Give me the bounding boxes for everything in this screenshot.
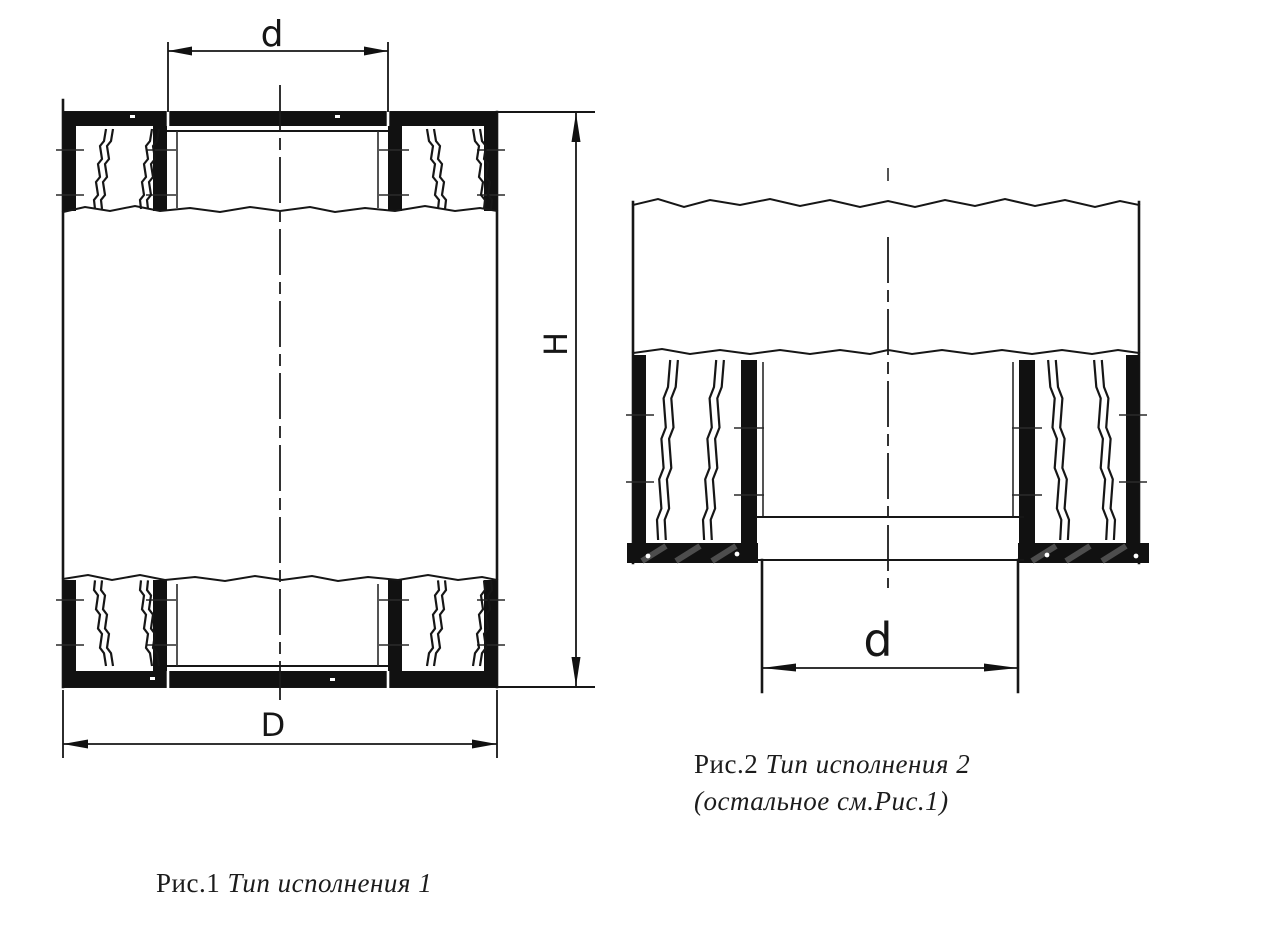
fig2-dimension-d: d xyxy=(762,613,1018,672)
figure2-caption-title: Тип исполнения 2 xyxy=(765,749,970,779)
figure1-caption: Рис.1 Тип исполнения 1 xyxy=(156,868,432,899)
fig1-label-D: D xyxy=(261,706,286,744)
fig1-dimension-d: d xyxy=(168,14,388,112)
figure2-caption: Рис.2 Тип исполнения 2 (остальное см.Рис… xyxy=(694,746,970,820)
figure1-caption-title: Тип исполнения 1 xyxy=(227,868,432,898)
figure1-caption-number: Рис.1 xyxy=(156,868,220,898)
fig1-dimension-D: D xyxy=(63,690,497,758)
fig2-label-d: d xyxy=(863,613,892,667)
fig2-body-outline xyxy=(633,199,1139,563)
figure2-caption-number: Рис.2 xyxy=(694,749,758,779)
fig1-label-d: d xyxy=(261,14,284,55)
figure2-caption-note: (остальное см.Рис.1) xyxy=(694,783,970,820)
scanned-technical-drawing-page: d D H xyxy=(0,0,1268,952)
filter-element-drawing: d D H xyxy=(0,0,1268,952)
figure1-drawing: d D H xyxy=(56,14,594,758)
figure2-drawing: d xyxy=(626,168,1149,692)
fig2-pleated-media xyxy=(657,360,1115,540)
fig1-dimension-H: H xyxy=(537,112,581,687)
fig1-label-H: H xyxy=(537,332,575,356)
